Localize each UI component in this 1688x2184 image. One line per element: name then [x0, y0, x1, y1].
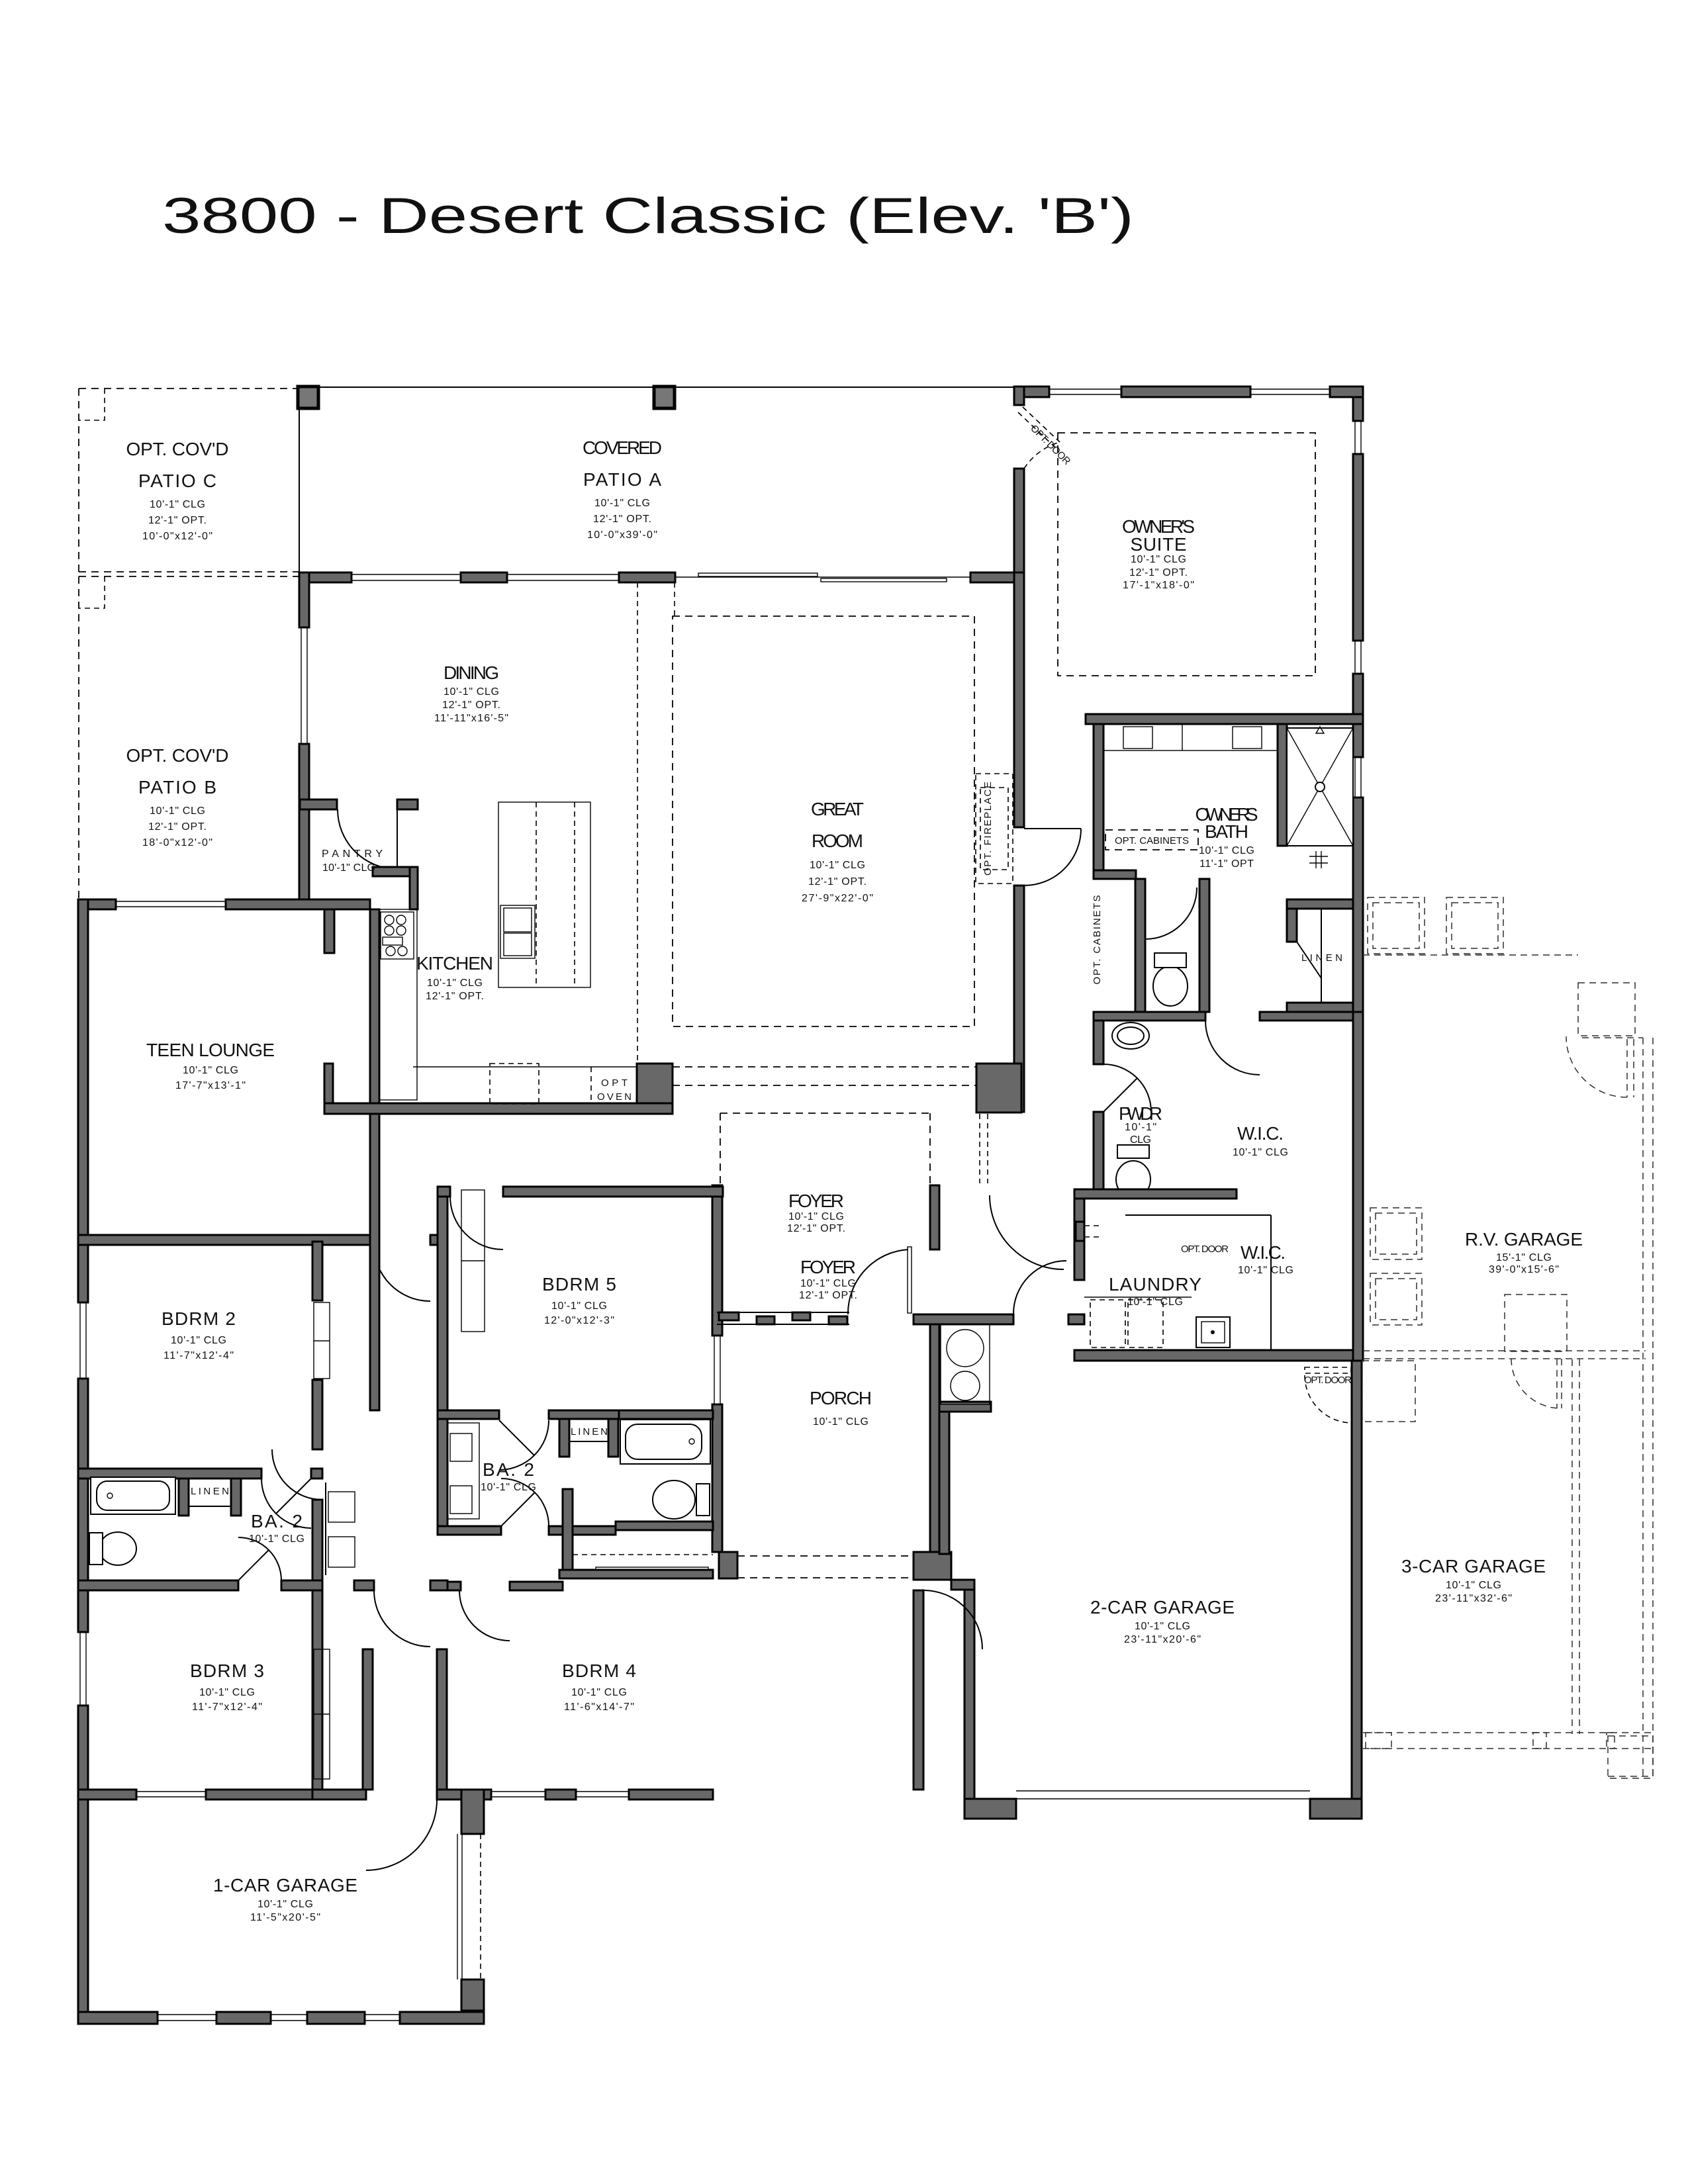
- svg-text:BDRM 2: BDRM 2: [162, 1308, 236, 1329]
- svg-text:12'-1" OPT.: 12'-1" OPT.: [808, 876, 867, 887]
- svg-text:PORCH: PORCH: [810, 1388, 872, 1408]
- svg-text:10'-1" CLG: 10'-1" CLG: [594, 498, 650, 509]
- svg-text:39'-0"x15'-6": 39'-0"x15'-6": [1489, 1264, 1559, 1275]
- svg-text:W.I.C.: W.I.C.: [1241, 1242, 1286, 1263]
- svg-text:BDRM 4: BDRM 4: [562, 1661, 636, 1681]
- svg-text:11'-7"x12'-4": 11'-7"x12'-4": [192, 1702, 262, 1713]
- svg-text:10'-1" CLG: 10'-1" CLG: [199, 1687, 255, 1698]
- svg-text:10'-1" CLG: 10'-1" CLG: [813, 1416, 868, 1428]
- svg-text:10'-1" CLG: 10'-1" CLG: [810, 860, 865, 871]
- svg-text:11'-7"x12'-4": 11'-7"x12'-4": [164, 1350, 234, 1361]
- svg-text:10'-1" CLG: 10'-1" CLG: [788, 1211, 844, 1222]
- svg-text:27'-9"x22'-0": 27'-9"x22'-0": [802, 893, 873, 904]
- svg-text:10'-1" CLG: 10'-1" CLG: [551, 1300, 607, 1312]
- svg-text:12'-1" OPT.: 12'-1" OPT.: [442, 700, 500, 711]
- svg-text:10'-1" CLG: 10'-1" CLG: [171, 1335, 226, 1346]
- svg-text:11'-6"x14'-7": 11'-6"x14'-7": [564, 1702, 634, 1713]
- svg-text:12'-1" OPT.: 12'-1" OPT.: [426, 991, 484, 1002]
- svg-text:12'-1" OPT.: 12'-1" OPT.: [148, 515, 207, 526]
- svg-text:11'-5"x20'-5": 11'-5"x20'-5": [250, 1912, 320, 1923]
- svg-text:R.V. GARAGE: R.V. GARAGE: [1465, 1229, 1583, 1250]
- svg-text:BATH: BATH: [1205, 821, 1248, 842]
- svg-text:TEEN LOUNGE: TEEN LOUNGE: [146, 1040, 275, 1060]
- svg-text:12'-1" OPT.: 12'-1" OPT.: [799, 1290, 857, 1301]
- svg-text:OPT. COV'D: OPT. COV'D: [126, 745, 229, 766]
- svg-text:10'-0"x12'-0": 10'-0"x12'-0": [142, 531, 212, 542]
- svg-text:BA. 2: BA. 2: [483, 1459, 534, 1480]
- svg-text:10'-0"x39'-0": 10'-0"x39'-0": [587, 529, 657, 541]
- svg-text:10'-1" CLG: 10'-1" CLG: [1135, 1621, 1190, 1632]
- svg-text:15'-1" CLG: 15'-1" CLG: [1496, 1252, 1552, 1263]
- svg-text:OPT: OPT: [601, 1077, 628, 1089]
- svg-text:2-CAR GARAGE: 2-CAR GARAGE: [1090, 1597, 1235, 1617]
- svg-text:OPT. CABINETS: OPT. CABINETS: [1115, 835, 1189, 846]
- svg-text:10'-1" CLG: 10'-1" CLG: [800, 1278, 856, 1289]
- svg-text:FOYER: FOYER: [800, 1257, 856, 1277]
- svg-text:3800 - Desert Classic (Elev. ': 3800 - Desert Classic (Elev. 'B'): [162, 188, 1134, 244]
- svg-text:OPT. DOOR: OPT. DOOR: [1304, 1375, 1352, 1386]
- svg-text:11'-11"x16'-5": 11'-11"x16'-5": [434, 713, 508, 724]
- svg-text:SUITE: SUITE: [1131, 534, 1187, 555]
- svg-text:BDRM 5: BDRM 5: [542, 1274, 616, 1295]
- svg-text:PATIO C: PATIO C: [138, 471, 216, 491]
- svg-text:OPT. DOOR: OPT. DOOR: [1181, 1244, 1229, 1255]
- svg-text:10'-1" CLG: 10'-1" CLG: [1238, 1265, 1293, 1276]
- svg-text:12'-1" OPT.: 12'-1" OPT.: [787, 1223, 845, 1234]
- svg-text:BA. 2: BA. 2: [251, 1511, 303, 1531]
- svg-text:12'-0"x12'-3": 12'-0"x12'-3": [544, 1315, 614, 1326]
- svg-text:10'-1" CLG: 10'-1" CLG: [1199, 845, 1254, 856]
- svg-text:DINING: DINING: [444, 662, 499, 683]
- svg-text:COVERED: COVERED: [583, 437, 662, 458]
- svg-text:10'-1" CLG: 10'-1" CLG: [481, 1482, 536, 1493]
- svg-text:10'-1" CLG: 10'-1" CLG: [249, 1533, 305, 1545]
- svg-text:10'-1" CLG: 10'-1" CLG: [427, 978, 483, 989]
- svg-text:10'-1" CLG: 10'-1" CLG: [150, 805, 205, 817]
- svg-text:OPT. COV'D: OPT. COV'D: [126, 439, 229, 459]
- svg-text:3-CAR GARAGE: 3-CAR GARAGE: [1401, 1556, 1546, 1576]
- svg-text:10'-1" CLG: 10'-1" CLG: [150, 499, 205, 510]
- svg-text:10'-1" CLG: 10'-1" CLG: [1446, 1580, 1501, 1591]
- svg-text:10'-1" CLG: 10'-1" CLG: [571, 1687, 627, 1698]
- svg-text:CLG: CLG: [1130, 1134, 1151, 1146]
- svg-text:GREAT: GREAT: [811, 799, 864, 819]
- svg-text:12'-1" OPT.: 12'-1" OPT.: [148, 821, 207, 833]
- svg-text:17'-7"x13'-1": 17'-7"x13'-1": [175, 1080, 246, 1091]
- svg-text:OPT. CABINETS: OPT. CABINETS: [1092, 895, 1103, 985]
- svg-text:LAUNDRY: LAUNDRY: [1109, 1274, 1201, 1295]
- svg-text:PWDR: PWDR: [1119, 1103, 1162, 1124]
- svg-text:18'-0"x12'-0": 18'-0"x12'-0": [142, 837, 212, 848]
- svg-text:10'-1" CLG: 10'-1" CLG: [1233, 1147, 1288, 1158]
- svg-text:BDRM 3: BDRM 3: [190, 1661, 264, 1681]
- svg-text:12'-1" OPT.: 12'-1" OPT.: [593, 514, 651, 525]
- svg-text:1-CAR GARAGE: 1-CAR GARAGE: [213, 1875, 357, 1895]
- svg-text:10'-1" CLG: 10'-1" CLG: [444, 686, 499, 698]
- svg-text:10'-1" CLG: 10'-1" CLG: [1131, 554, 1186, 565]
- svg-text:ROOM: ROOM: [812, 831, 863, 851]
- svg-text:OPT. FIREPLACE: OPT. FIREPLACE: [982, 782, 994, 876]
- svg-text:17'-1"x18'-0": 17'-1"x18'-0": [1123, 580, 1194, 591]
- svg-text:FOYER: FOYER: [788, 1191, 844, 1211]
- svg-text:12'-1" OPT.: 12'-1" OPT.: [1129, 567, 1188, 578]
- svg-text:10'-1" CLG: 10'-1" CLG: [1127, 1297, 1183, 1308]
- svg-text:W.I.C.: W.I.C.: [1237, 1123, 1284, 1144]
- svg-text:KITCHEN: KITCHEN: [416, 953, 493, 974]
- svg-text:11'-1" OPT: 11'-1" OPT: [1199, 858, 1254, 870]
- svg-text:10'-1" CLG: 10'-1" CLG: [258, 1899, 313, 1910]
- svg-text:10'-1" CLG: 10'-1" CLG: [322, 862, 375, 874]
- svg-text:10'-1" CLG: 10'-1" CLG: [183, 1065, 238, 1076]
- svg-text:PATIO B: PATIO B: [138, 777, 216, 797]
